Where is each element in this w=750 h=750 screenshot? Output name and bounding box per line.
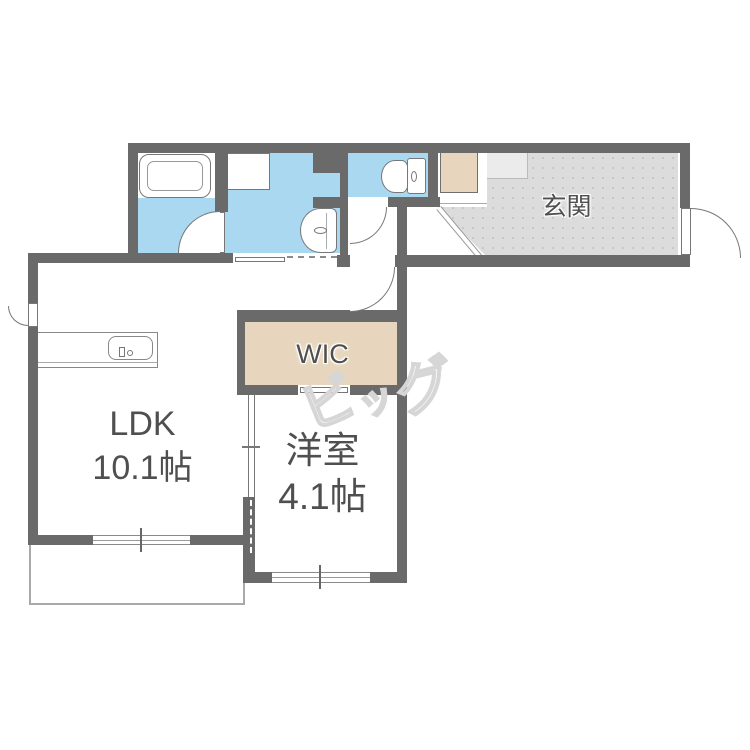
wall: [215, 143, 228, 212]
toilet-door-opening: [348, 197, 388, 207]
window-bedroom-tick: [319, 565, 321, 589]
toilet-bowl-icon: [381, 160, 409, 193]
washbasin-knob-icon: [314, 227, 327, 234]
washing-machine-pan-icon: [227, 153, 270, 190]
wall: [28, 253, 233, 263]
wall: [313, 197, 340, 208]
service-door-leaf: [28, 303, 38, 327]
entrance-door-arc: [691, 208, 741, 258]
hall-door-opening: [350, 255, 395, 267]
ldk-size: 10.1帖: [55, 446, 230, 490]
entrance-step-line: [438, 203, 487, 204]
kitchen-counter-edge: [38, 362, 157, 363]
ldk-name: LDK: [55, 402, 230, 446]
wall: [387, 197, 440, 207]
wall: [190, 535, 247, 545]
wall: [237, 385, 298, 395]
window-ldk-tick: [140, 528, 142, 552]
shoe-cabinet: [440, 151, 478, 193]
wall: [313, 143, 340, 173]
wall: [370, 572, 407, 583]
faucet-icon: [119, 347, 125, 357]
entrance-label: 玄関: [529, 187, 604, 223]
ldk-label: LDK 10.1帖: [55, 402, 230, 490]
wall: [28, 535, 93, 545]
wall: [243, 572, 272, 583]
washroom-sliding-door: [235, 257, 285, 262]
wall: [128, 143, 690, 153]
bedroom-name: 洋室: [245, 428, 400, 474]
wall: [395, 255, 690, 267]
wall: [28, 253, 38, 545]
wic-label: WIC: [280, 339, 365, 370]
faucet-dot-icon: [127, 350, 133, 356]
wall: [340, 143, 348, 267]
entrance-door-leaf: [681, 208, 691, 255]
floor-plan: ビ ッ グ LDK 10.1帖 洋室 4.1帖 WIC 玄関: [0, 0, 750, 750]
wall: [237, 310, 407, 322]
washroom-passage-dashed: [287, 256, 337, 258]
bathtub-inner-icon: [147, 161, 203, 191]
bedroom-size: 4.1帖: [245, 474, 400, 520]
service-door-arc: [8, 306, 28, 326]
toilet-door-arc: [350, 207, 387, 244]
toilet-knob-icon: [411, 171, 417, 182]
wall: [680, 143, 690, 208]
hall-door-arc: [350, 267, 395, 312]
window-bedroom-mid: [272, 577, 370, 578]
bedroom-label: 洋室 4.1帖: [245, 428, 400, 520]
kitchen-sink-icon: [108, 336, 153, 360]
wall: [128, 153, 138, 263]
watermark-char: グ: [389, 353, 459, 423]
entrance-step: [487, 153, 528, 179]
balcony: [29, 543, 245, 605]
